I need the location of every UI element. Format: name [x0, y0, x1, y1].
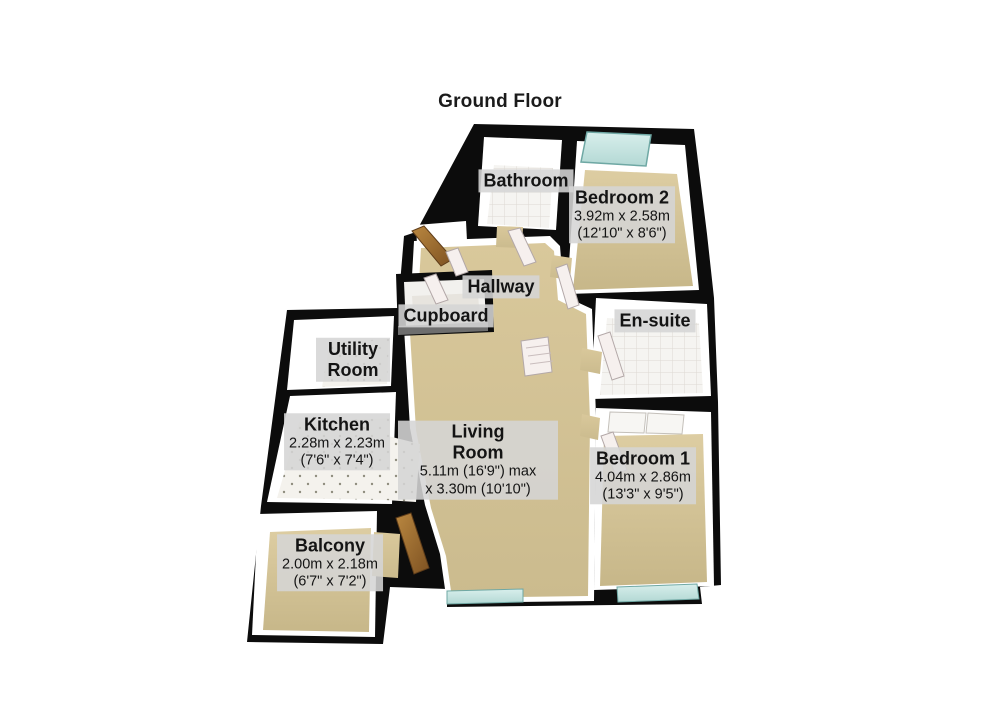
- bedroom1-window: [617, 584, 699, 602]
- floorplan-drawing: [0, 0, 1000, 727]
- label-utility: Utility Room: [316, 338, 390, 382]
- label-ensuite: En-suite: [614, 309, 695, 332]
- label-bedroom1: Bedroom 1 4.04m x 2.86m (13'3" x 9'5"): [590, 447, 696, 504]
- label-kitchen: Kitchen 2.28m x 2.23m (7'6" x 7'4"): [284, 413, 390, 470]
- label-balcony: Balcony 2.00m x 2.18m (6'7" x 7'2"): [277, 534, 383, 591]
- hallway-door: [521, 337, 552, 376]
- label-cupboard: Cupboard: [399, 304, 494, 327]
- label-hallway: Hallway: [462, 275, 539, 298]
- bedroom1-door-opening: [580, 414, 600, 440]
- floorplan-page: Ground Floor: [0, 0, 1000, 727]
- ensuite-door-opening: [580, 348, 602, 374]
- label-bedroom2: Bedroom 2 3.92m x 2.58m (12'10" x 8'6"): [569, 186, 675, 243]
- bedroom2-window: [581, 132, 651, 166]
- living-room-window: [447, 589, 523, 604]
- label-living-room: Living Room 5.11m (16'9") max x 3.30m (1…: [398, 421, 558, 500]
- label-bathroom: Bathroom: [479, 169, 574, 192]
